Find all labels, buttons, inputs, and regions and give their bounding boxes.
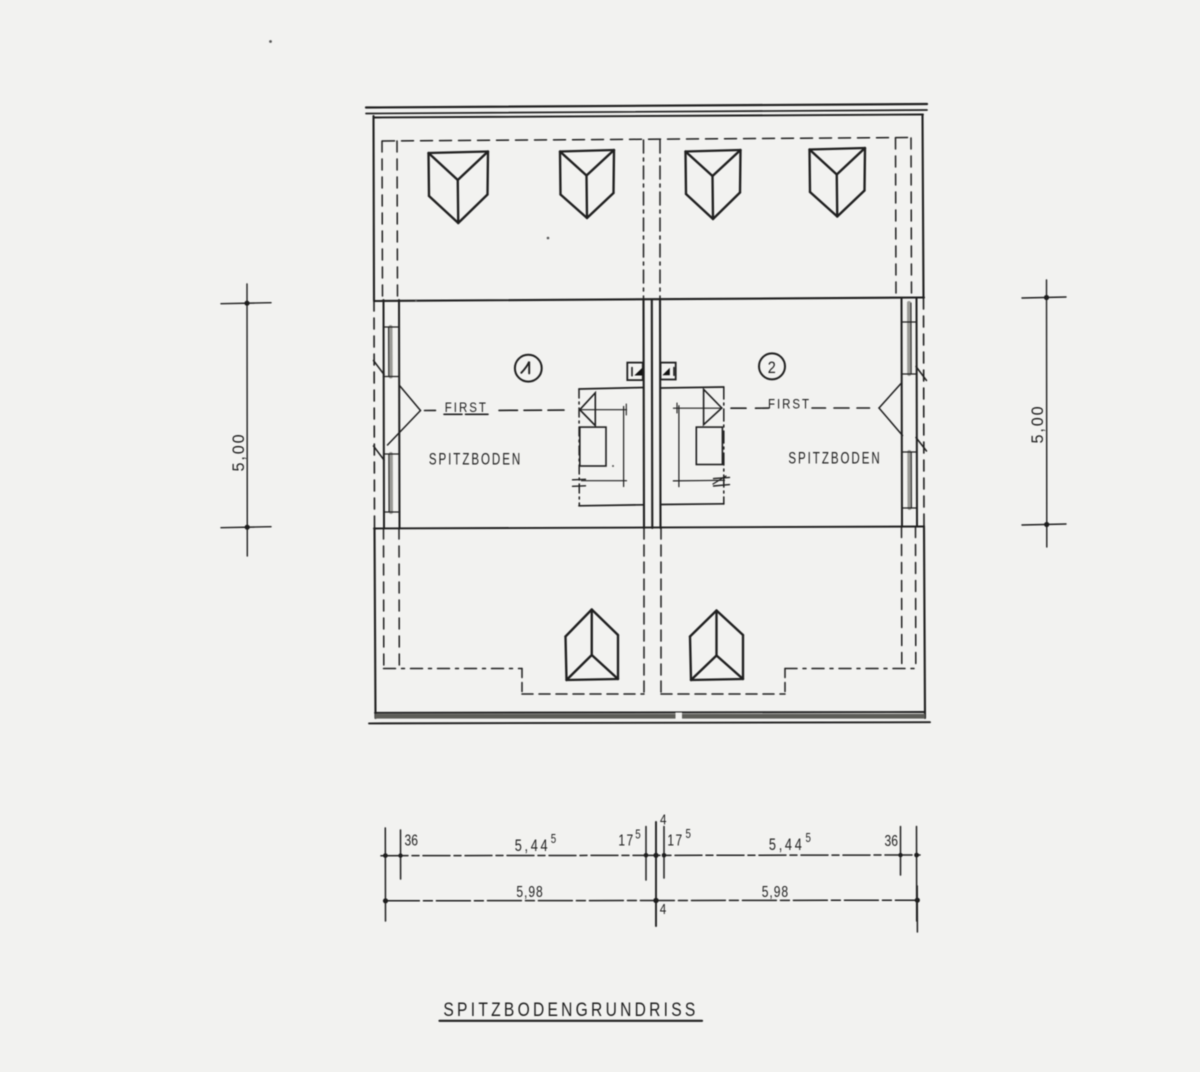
svg-text:2: 2 — [768, 359, 776, 377]
svg-text:5,44: 5,44 — [515, 836, 551, 855]
svg-text:5,98: 5,98 — [516, 883, 543, 901]
svg-text:17: 17 — [667, 831, 683, 849]
svg-text:17: 17 — [618, 831, 634, 849]
svg-text:5,98: 5,98 — [762, 883, 789, 901]
svg-text:SPITZBODENGRUNDRISS: SPITZBODENGRUNDRISS — [443, 999, 698, 1021]
svg-text:5,00: 5,00 — [228, 432, 247, 471]
svg-text:4: 4 — [660, 900, 667, 917]
svg-text:5: 5 — [805, 832, 810, 845]
svg-text:5,44: 5,44 — [769, 835, 805, 854]
svg-text:36: 36 — [884, 831, 898, 849]
svg-text:5: 5 — [551, 833, 556, 846]
svg-text:FIRST: FIRST — [768, 395, 811, 411]
svg-text:36: 36 — [404, 831, 418, 849]
svg-text:5: 5 — [685, 828, 690, 841]
svg-text:SPITZBODEN: SPITZBODEN — [429, 451, 522, 470]
svg-text:5: 5 — [635, 828, 640, 841]
svg-text:SPITZBODEN: SPITZBODEN — [788, 450, 881, 469]
svg-text:5,00: 5,00 — [1027, 404, 1046, 443]
svg-text:4: 4 — [660, 811, 667, 828]
svg-text:FIRST: FIRST — [445, 399, 488, 415]
